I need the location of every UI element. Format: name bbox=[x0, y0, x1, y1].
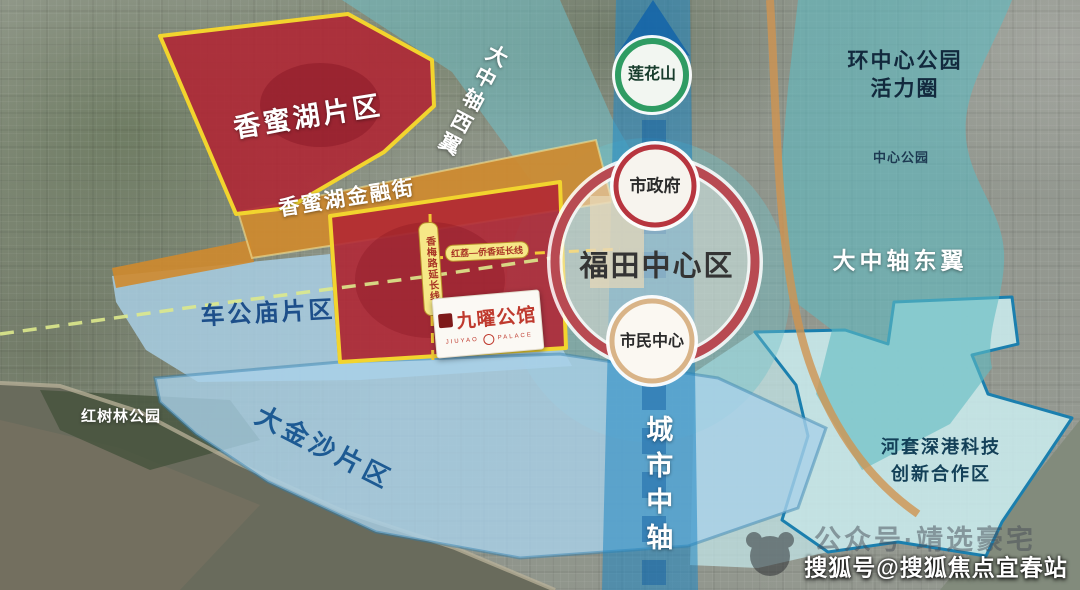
project-name: 九曜公馆 bbox=[455, 299, 537, 333]
civic-center-label: 市民中心 bbox=[620, 331, 684, 353]
project-tagline-right: PALACE bbox=[498, 332, 534, 341]
lianhuashan-label: 莲花山 bbox=[628, 64, 676, 86]
futian-center-label: 福田中心区 bbox=[579, 247, 734, 286]
project-seal-icon bbox=[482, 333, 494, 345]
hetao-line1: 河套深港科技 bbox=[881, 437, 1001, 457]
planning-map: 香蜜湖片区 香蜜湖金融街 大中轴西翼 车公庙片区 大金沙片区 红树林公园 环中心… bbox=[0, 0, 1080, 590]
city-government-label: 市政府 bbox=[630, 176, 681, 199]
city-axis-label: 城市中轴 bbox=[639, 415, 675, 559]
central-park-ring-line1: 环中心公园 bbox=[848, 50, 963, 73]
project-tagline-left: JIUYAO bbox=[445, 337, 479, 346]
central-park-ring-label: 环中心公园 活力圈 bbox=[848, 48, 963, 105]
project-logo-row: 九曜公馆 bbox=[437, 299, 537, 334]
hetao-label: 河套深港科技 创新合作区 bbox=[881, 434, 1001, 488]
project-brand-mark-icon bbox=[438, 313, 453, 328]
hongshulin-park-label: 红树林公园 bbox=[81, 407, 161, 427]
hetao-line2: 创新合作区 bbox=[891, 464, 991, 484]
east-wing-label: 大中轴东翼 bbox=[833, 245, 968, 276]
panda-logo-icon bbox=[746, 532, 794, 576]
project-logo-card: 九曜公馆 JIUYAO PALACE bbox=[432, 289, 545, 358]
souhu-watermark: 搜狐号@搜狐焦点宜春站 bbox=[804, 552, 1067, 583]
central-park-label: 中心公园 bbox=[873, 149, 929, 167]
central-park-ring-line2: 活力圈 bbox=[871, 78, 940, 101]
